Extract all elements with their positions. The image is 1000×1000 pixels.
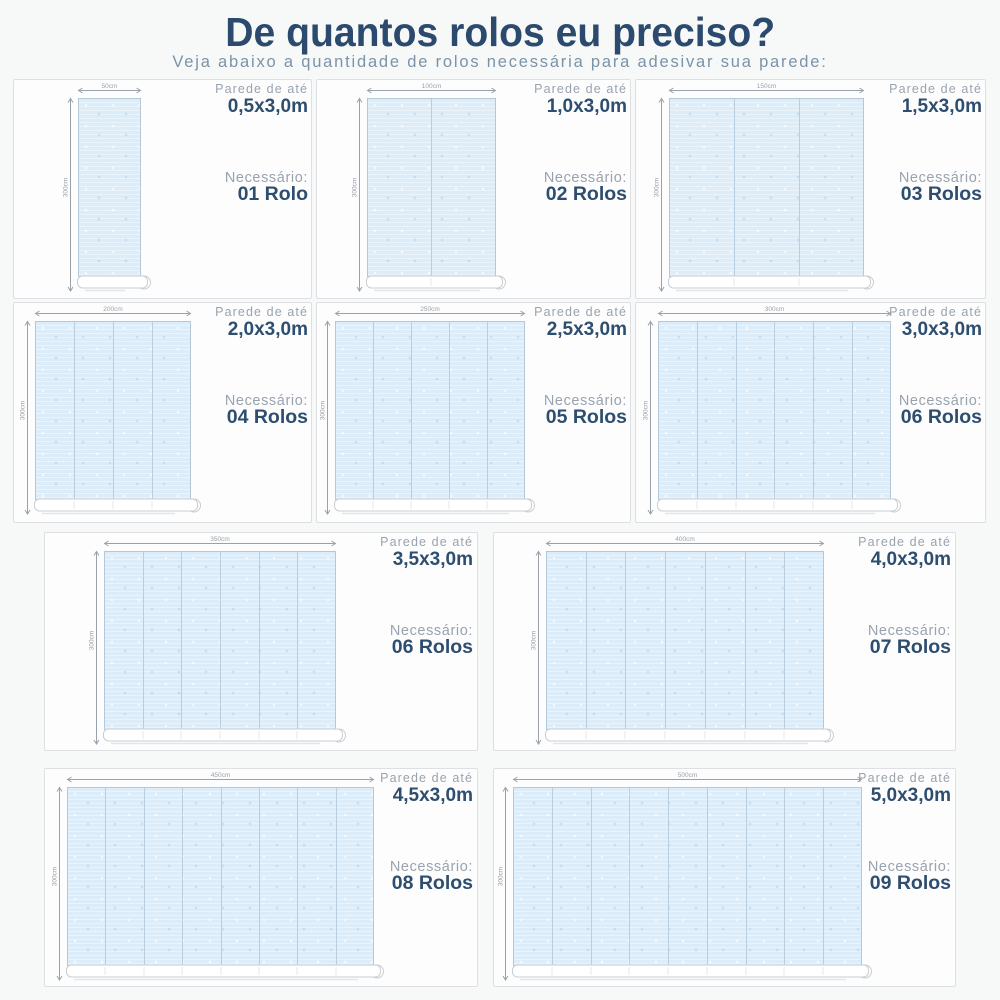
- svg-text:50cm: 50cm: [102, 83, 118, 90]
- svg-text:300cm: 300cm: [320, 401, 327, 421]
- svg-text:400cm: 400cm: [675, 536, 695, 543]
- svg-text:300cm: 300cm: [643, 401, 650, 421]
- svg-text:100cm: 100cm: [422, 83, 442, 90]
- svg-text:300cm: 300cm: [89, 631, 96, 651]
- svg-text:200cm: 200cm: [103, 306, 123, 313]
- svg-text:300cm: 300cm: [531, 631, 538, 651]
- svg-text:350cm: 350cm: [210, 536, 230, 543]
- svg-text:450cm: 450cm: [211, 772, 231, 779]
- svg-text:250cm: 250cm: [420, 306, 440, 313]
- svg-text:300cm: 300cm: [352, 178, 359, 198]
- svg-text:300cm: 300cm: [654, 178, 661, 198]
- svg-text:150cm: 150cm: [757, 83, 777, 90]
- svg-text:300cm: 300cm: [765, 306, 785, 313]
- svg-text:300cm: 300cm: [20, 401, 27, 421]
- svg-text:500cm: 500cm: [678, 772, 698, 779]
- svg-text:300cm: 300cm: [498, 867, 505, 887]
- svg-text:300cm: 300cm: [52, 867, 59, 887]
- svg-text:300cm: 300cm: [63, 178, 70, 198]
